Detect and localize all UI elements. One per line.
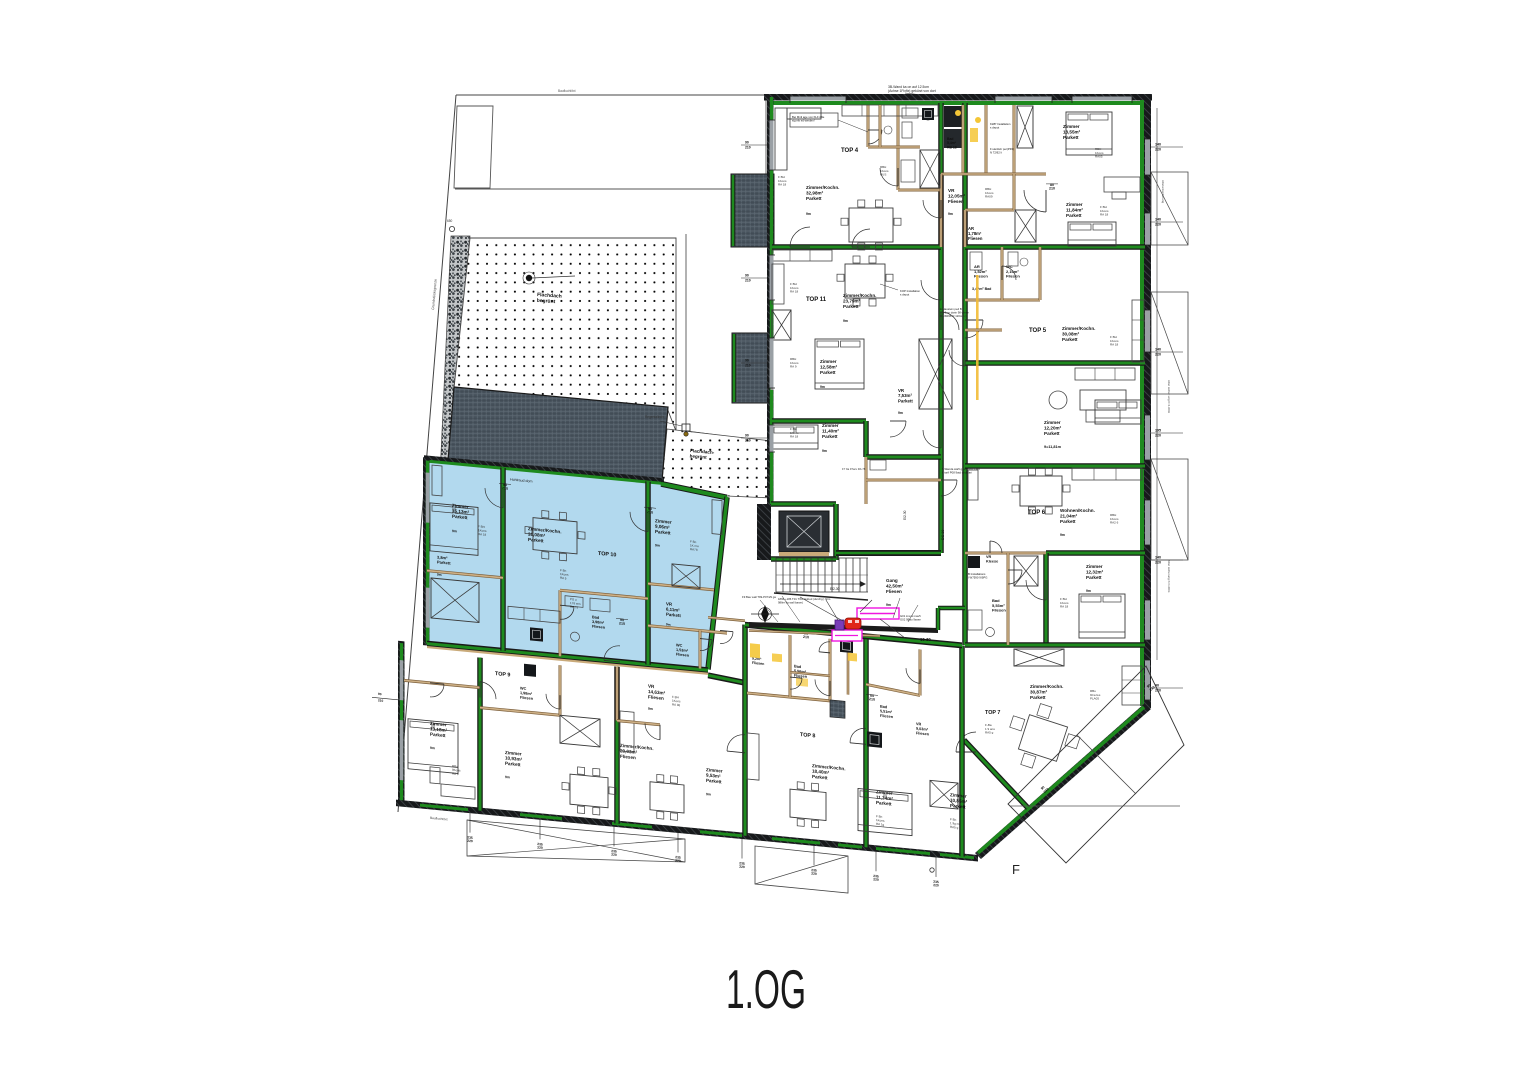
svg-text:10-30: 10-30 <box>920 637 931 642</box>
svg-text:210: 210 <box>745 278 751 282</box>
svg-text:Zimmer12,58m²Parkett: Zimmer12,58m²Parkett <box>820 359 838 375</box>
svg-text:210: 210 <box>745 145 751 149</box>
svg-text:Zimmer10,85m²Parkett: Zimmer10,85m²Parkett <box>950 792 968 809</box>
svg-text:90: 90 <box>378 692 382 696</box>
svg-text:TOP 11: TOP 11 <box>806 297 827 303</box>
svg-text:235220: 235220 <box>933 880 939 888</box>
svg-text:220: 220 <box>1155 223 1161 227</box>
svg-text:195: 195 <box>1155 429 1161 433</box>
svg-text:220: 220 <box>1155 148 1161 152</box>
svg-text:9m: 9m <box>820 385 825 389</box>
svg-text:9m: 9m <box>666 622 671 626</box>
svg-text:Zimmer11,40m²Parkett: Zimmer11,40m²Parkett <box>822 423 839 439</box>
svg-text:Zimmer9,53m²Parkett: Zimmer9,53m²Parkett <box>706 767 723 784</box>
svg-text:9m: 9m <box>898 411 903 415</box>
svg-text:9m: 9m <box>843 319 848 323</box>
svg-text:90: 90 <box>745 434 749 438</box>
svg-text:650: 650 <box>447 219 453 223</box>
svg-text:9m: 9m <box>1086 589 1091 593</box>
svg-text:235220: 235220 <box>537 842 543 850</box>
svg-text:9m: 9m <box>648 707 653 711</box>
svg-text:235220: 235220 <box>675 855 681 863</box>
svg-text:F7 9a 97ars RA 78: F7 9a 97ars RA 78 <box>842 467 866 471</box>
svg-text:Zimmer15,13m²Parkett: Zimmer15,13m²Parkett <box>452 503 470 520</box>
svg-text:Regenfallrohr: Regenfallrohr <box>645 415 665 419</box>
svg-text:220: 220 <box>1155 434 1161 438</box>
svg-text:3B-Wand ka on auf 12.5cm(Achs: 3B-Wand ka on auf 12.5cm(Achse 1Fixfix) … <box>888 85 936 93</box>
svg-text:Bauflucht/txt: Bauflucht/txt <box>558 89 576 93</box>
svg-text:3,4?m² Bad: 3,4?m² Bad <box>972 287 991 291</box>
svg-text:1.OG: 1.OG <box>726 958 806 1020</box>
svg-text:90: 90 <box>745 274 749 278</box>
svg-text:9m: 9m <box>1060 533 1065 537</box>
svg-text:Abst sicher ung h=1.00m: Abst sicher ung h=1.00m <box>1167 380 1171 414</box>
svg-text:Zimmer13,55m²Parkett: Zimmer13,55m²Parkett <box>1063 124 1081 140</box>
svg-text:9m: 9m <box>948 212 953 216</box>
svg-text:Zimmer12,20m²Parkett: Zimmer12,20m²Parkett <box>1044 420 1062 436</box>
svg-text:90: 90 <box>745 141 749 145</box>
svg-text:Zimmer11,84m²Parkett: Zimmer11,84m²Parkett <box>1066 202 1083 218</box>
svg-text:235220: 235220 <box>739 861 745 869</box>
svg-text:140: 140 <box>1155 348 1161 352</box>
svg-text:9m: 9m <box>452 529 457 533</box>
svg-text:9m: 9m <box>806 212 811 216</box>
svg-text:9m: 9m <box>505 775 510 779</box>
svg-text:210: 210 <box>745 363 751 367</box>
svg-text:F9 Bau wall T99-P07/29 ga: F9 Bau wall T99-P07/29 ga <box>742 595 776 599</box>
svg-text:EI2-30: EI2-30 <box>903 510 907 520</box>
svg-text:235220: 235220 <box>467 835 473 843</box>
svg-text:9=11,81m: 9=11,81m <box>1044 445 1062 449</box>
svg-text:210: 210 <box>378 698 384 703</box>
svg-text:F: F <box>1012 862 1020 877</box>
svg-text:9m: 9m <box>655 543 660 547</box>
svg-text:140: 140 <box>1155 556 1161 560</box>
svg-text:220: 220 <box>1155 353 1161 357</box>
svg-text:Zimmer12,32m²Parkett: Zimmer12,32m²Parkett <box>1086 564 1104 580</box>
svg-text:DC-30: DC-30 <box>941 530 945 540</box>
svg-text:235220: 235220 <box>811 868 817 876</box>
svg-text:Zimmer10,93m²Parkett: Zimmer10,93m²Parkett <box>505 750 523 767</box>
svg-text:140: 140 <box>1155 218 1161 222</box>
svg-text:90: 90 <box>745 359 749 363</box>
svg-text:B InstallationsI W7590 9 BPG: B InstallationsI W7590 9 BPG <box>968 572 987 580</box>
svg-text:Zimmer9,06m²Parkett: Zimmer9,06m²Parkett <box>655 518 672 535</box>
svg-text:TOP 7: TOP 7 <box>985 710 1000 716</box>
svg-text:Abst sicherung h=1.00m: Abst sicherung h=1.00m <box>1167 560 1171 593</box>
svg-text:EI2-30: EI2-30 <box>830 587 840 591</box>
svg-text:Absturzsicherung: Absturzsicherung <box>1161 180 1165 204</box>
svg-text:9m: 9m <box>822 449 827 453</box>
svg-text:140: 140 <box>1155 143 1161 147</box>
svg-text:TOP 6: TOP 6 <box>1028 510 1046 516</box>
svg-text:235220: 235220 <box>611 849 617 857</box>
svg-text:TOP 5: TOP 5 <box>1029 328 1047 334</box>
svg-text:210: 210 <box>745 438 751 442</box>
svg-text:220: 220 <box>1155 561 1161 565</box>
svg-text:235220: 235220 <box>873 874 879 882</box>
svg-text:9m: 9m <box>437 573 442 577</box>
svg-text:9m: 9m <box>430 746 435 750</box>
svg-text:9m: 9m <box>706 792 711 796</box>
svg-text:TOP 4: TOP 4 <box>841 148 859 154</box>
svg-text:Zimmer13,18m²Parkett: Zimmer13,18m²Parkett <box>430 721 448 738</box>
svg-text:9m: 9m <box>886 603 891 607</box>
